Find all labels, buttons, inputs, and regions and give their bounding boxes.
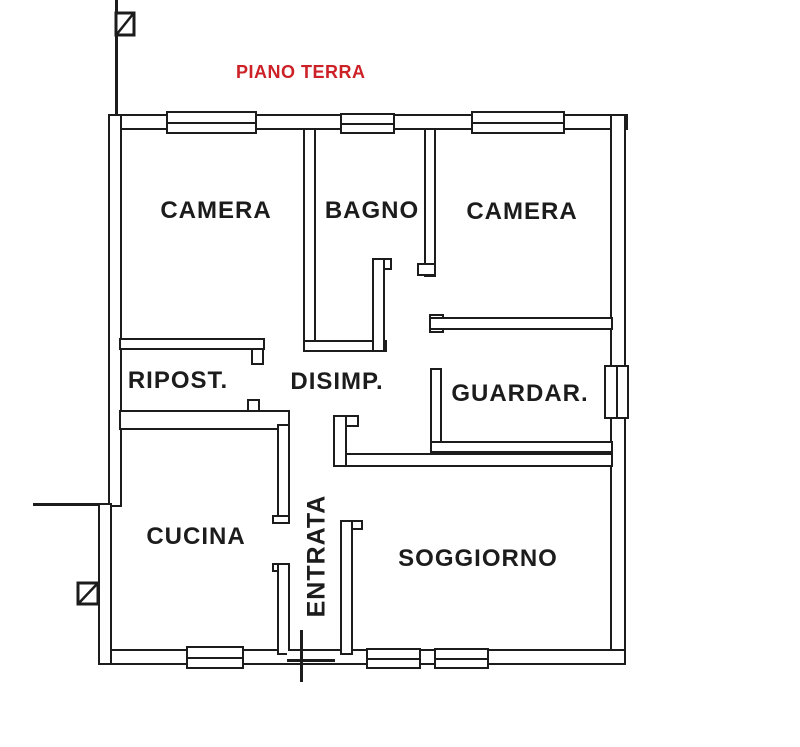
wall-exterior-left-upper <box>108 114 122 507</box>
floor-title: PIANO TERRA <box>236 62 366 83</box>
room-label-camera-right: CAMERA <box>466 198 577 226</box>
wall-cucina-right-upper <box>277 424 290 523</box>
room-label-disimpegno: DISIMP. <box>290 368 383 396</box>
room-label-camera-left: CAMERA <box>160 197 271 225</box>
window-camera-right-icon <box>471 111 565 134</box>
wall-ripostiglio-top <box>119 338 265 350</box>
room-label-ripostiglio: RIPOST. <box>128 367 228 395</box>
wall-guardaroba-left <box>430 368 442 447</box>
wall-exterior-left-lower <box>98 503 112 665</box>
room-label-bagno: BAGNO <box>325 197 419 225</box>
wall-soggiorno-top <box>345 453 613 467</box>
wall-camera-right-bottom <box>429 317 613 330</box>
wall-guardaroba-bottom <box>430 441 613 453</box>
wall-ripostiglio-bottom <box>119 410 290 430</box>
wall-bagno-camera-right <box>424 128 436 277</box>
boundary-post-top-icon <box>114 11 136 37</box>
door-jamb-ripostiglio-top <box>251 348 264 365</box>
wall-cucina-right-lower <box>277 563 290 655</box>
wall-soggiorno-left <box>340 520 353 655</box>
window-cucina-icon <box>186 646 244 669</box>
boundary-post-left-icon <box>76 581 100 606</box>
window-camera-left-icon <box>166 111 257 134</box>
room-label-soggiorno: SOGGIORNO <box>398 545 558 573</box>
wall-bagno-door-stub <box>372 258 385 352</box>
room-label-cucina: CUCINA <box>146 523 245 551</box>
window-soggiorno-left-icon <box>366 648 421 669</box>
room-label-guardaroba: GUARDAR. <box>451 380 588 408</box>
window-soggiorno-right-icon <box>434 648 489 669</box>
window-bagno-icon <box>340 113 395 134</box>
room-label-entrata: ENTRATA <box>303 495 332 618</box>
door-jamb-camera-right <box>417 263 436 276</box>
wall-camera-left-bagno <box>303 128 316 352</box>
window-guardaroba-icon <box>604 365 629 419</box>
wall-exterior-bottom <box>98 649 626 665</box>
entrance-door-icon <box>300 630 303 682</box>
entrance-threshold <box>287 659 335 662</box>
door-jamb-cucina-top <box>272 515 290 524</box>
floor-plan: PIANO TERRA CA <box>0 0 800 747</box>
